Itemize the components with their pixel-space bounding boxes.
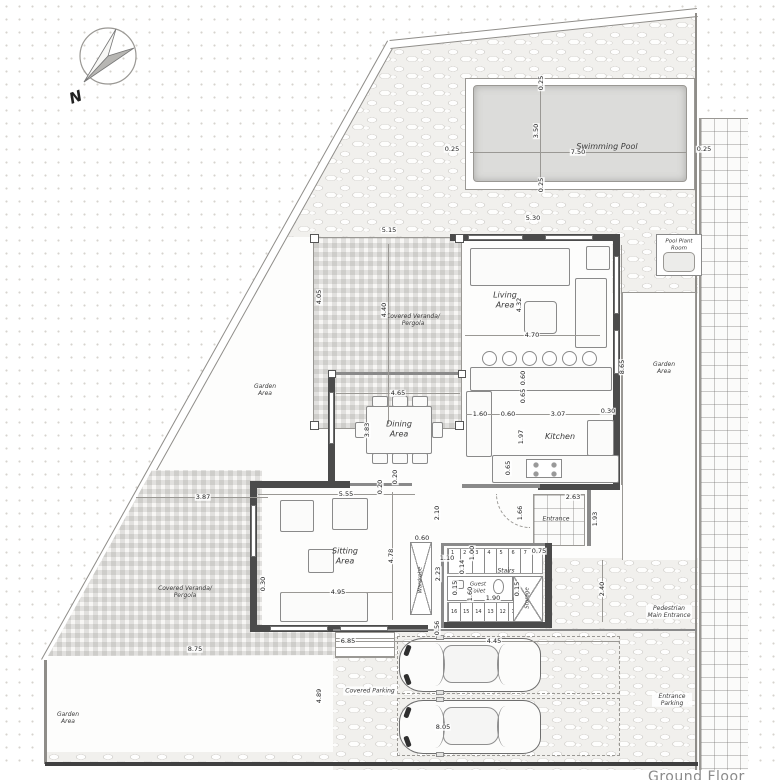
column-3 (310, 421, 319, 430)
label-garden-left: Garden Area (247, 383, 283, 397)
column-4 (455, 421, 464, 430)
floor-plan-canvas: 12345678 161514131211109 Swimming Pool P… (0, 0, 780, 780)
dim-veranda-mid: 4.40 (381, 302, 388, 318)
window-living-1 (468, 235, 523, 240)
window-sitting-bottom-1 (270, 626, 328, 631)
label-garden-right: Garden Area (646, 361, 682, 375)
car-mirror (436, 697, 444, 702)
dim-kitchen-d: 0.30 (600, 408, 616, 415)
dim-dining-bottom: 0.20 (392, 469, 399, 485)
stair-num: 7 (524, 550, 527, 556)
dining-chair-6 (412, 453, 428, 464)
dim-stairs-s2: 1.60 (467, 586, 474, 602)
car-rear-window (497, 644, 511, 685)
column-6 (458, 370, 466, 378)
sitting-armchair-2 (332, 498, 368, 530)
stair-num: 14 (475, 609, 481, 615)
dim-bottom-gap: 0.56 (434, 620, 441, 636)
living-side-table (586, 246, 610, 270)
label-pedestrian-entrance: Pedestrian Main Entrance (646, 605, 692, 619)
label-veranda-top: Covered Veranda/ Pergola (380, 313, 446, 327)
column-2 (455, 234, 464, 243)
dim-kitchen-b: 0.60 (500, 411, 516, 418)
dining-chair-4 (372, 453, 388, 464)
dim-garden-height: 4.89 (316, 688, 323, 704)
living-coffee-table (524, 301, 557, 334)
bar-stool-4 (542, 351, 557, 366)
driveway-corridor (699, 118, 748, 770)
dining-chair-2 (392, 396, 408, 407)
car-rear-window (497, 706, 511, 747)
label-stairs: Stairs (497, 567, 514, 574)
wall-kitchen-bottom-right (538, 484, 620, 490)
column-1 (310, 234, 319, 243)
dim-garden-width: 8.75 (187, 646, 203, 653)
dim-sitting-left: 0.30 (260, 576, 267, 592)
window-sitting-bottom-2 (340, 626, 388, 631)
kitchen-counter-left (466, 391, 492, 457)
dim-living-right: 8.65 (619, 359, 626, 375)
driveway-top-line (699, 118, 748, 119)
dim-sitting-top: 5.55 (338, 491, 354, 498)
dining-chair-3 (412, 396, 428, 407)
dim-entrance-width: 2.63 (565, 494, 581, 501)
dim-pool-width: 7.50 (570, 149, 586, 156)
sitting-armchair-1 (280, 500, 314, 532)
dim-stairs-p: 0.75 (531, 548, 547, 555)
dim-dining-height: 3.83 (364, 422, 371, 438)
stair-num: 13 (487, 609, 493, 615)
car-roof (443, 707, 499, 745)
dim-kitchen-e: 0.60 (520, 370, 527, 386)
label-pool-plant-room: Pool Plant Room (660, 238, 698, 251)
dim-stairs-tread: 0.14 (459, 559, 466, 575)
garden-area-right (622, 292, 696, 560)
stair-num: 15 (463, 609, 469, 615)
label-storage: Storage (525, 587, 532, 609)
dim-kitchen-g: 0.65 (505, 460, 512, 476)
dim-veranda-left-width: 3.87 (195, 494, 211, 501)
stairs-numbers-up: 12345678 (451, 550, 539, 556)
car-1 (399, 638, 541, 692)
label-wardrobe: Wardrobe (418, 567, 425, 594)
dim-parking-a: 6.85 (340, 638, 356, 645)
toilet-wc (493, 579, 504, 594)
dim-kitchen-c: 3.07 (550, 411, 566, 418)
bar-stool-5 (562, 351, 577, 366)
label-covered-parking: Covered Parking (343, 686, 397, 695)
dim-pool-bottom: 0.25 (538, 177, 545, 193)
dim-kitchen-height: 1.97 (518, 429, 525, 445)
boundary-wall-bottom (45, 762, 698, 766)
dining-chair-1 (372, 396, 388, 407)
label-dining: Dining Area (381, 419, 417, 438)
dim-sitting-width: 4.95 (330, 589, 346, 596)
stair-num: 4 (487, 550, 490, 556)
car-mirror (436, 752, 444, 757)
label-sitting: Sitting Area (329, 546, 361, 565)
dim-parking-b: 4.45 (486, 638, 502, 645)
label-entrance-parking: Entrance Parking (652, 693, 692, 707)
dim-stairs-s3: 0.15 (514, 581, 521, 597)
label-kitchen: Kitchen (545, 432, 575, 442)
dining-chair-8 (432, 422, 443, 438)
dim-wardrobe-width: 0.60 (414, 535, 430, 542)
sitting-sofa (280, 592, 368, 622)
north-label: N (67, 86, 85, 106)
living-sofa-right (575, 278, 607, 348)
dim-stairs-s1: 0.15 (452, 580, 459, 596)
dim-living-height: 4.32 (516, 297, 523, 313)
boundary-wall-left (44, 660, 47, 764)
label-entrance: Entrance (543, 515, 570, 522)
dim-hall-width: 1.10 (439, 555, 455, 562)
dim-right-vertical: 2.40 (599, 581, 606, 597)
dim-line (336, 641, 620, 642)
kitchen-island (470, 367, 612, 391)
dim-pool-left: 0.25 (444, 146, 460, 153)
dim-sitting-height: 4.78 (388, 548, 395, 564)
car-mirror (436, 690, 444, 695)
dim-sitting-t: 0.20 (377, 479, 384, 495)
bar-stool-1 (482, 351, 497, 366)
car-2 (399, 700, 541, 754)
wall-stairs-bottom (441, 622, 552, 628)
car-roof (443, 645, 499, 683)
kitchen-fridge (587, 420, 614, 456)
dim-living-width: 4.70 (524, 332, 540, 339)
dim-entrance-left: 1.66 (517, 505, 524, 521)
label-veranda-left: Covered Veranda/ Pergola (149, 585, 221, 599)
dim-kitchen-f: 0.65 (520, 388, 527, 404)
stair-num: 2 (463, 550, 466, 556)
dim-hall-h1: 2.10 (434, 505, 441, 521)
stair-num: 5 (499, 550, 502, 556)
dim-kitchen-a: 1.60 (472, 411, 488, 418)
wall-stairs-right (545, 543, 552, 628)
bar-stool-6 (582, 351, 597, 366)
label-garden-bottom: Garden Area (50, 711, 86, 725)
dim-living-top: 5.30 (525, 215, 541, 222)
pool-plant-equipment (663, 252, 695, 272)
plan-title: Ground Floor (648, 769, 745, 780)
dim-veranda-width: 5.15 (381, 227, 397, 234)
window-living-right (614, 256, 619, 314)
garden-area-bottom (48, 652, 330, 752)
swimming-pool (473, 85, 687, 182)
window-dining-left (329, 392, 334, 444)
wall-sitting-top (250, 481, 350, 488)
dim-stairs-width: 1.90 (485, 595, 501, 602)
dim-pool-top: 0.25 (538, 75, 545, 91)
dim-dining-width: 4.65 (390, 390, 406, 397)
dim-entrance-height: 1.93 (592, 511, 599, 527)
dim-stairs-flight-width: 1.00 (469, 545, 476, 561)
dim-pool-height: 3.50 (533, 123, 540, 139)
window-living-2 (545, 235, 593, 240)
dim-hall-h2: 2.23 (435, 566, 442, 582)
dim-line (388, 244, 389, 424)
wall-kitchen-bottom-left (462, 484, 540, 488)
kitchen-hob (526, 459, 562, 478)
stair-num: 12 (499, 609, 505, 615)
bar-stool-3 (522, 351, 537, 366)
dim-pool-right: 0.25 (696, 146, 712, 153)
living-sofa-top (470, 248, 570, 286)
dim-parking-c: 8.05 (435, 724, 451, 731)
dim-veranda-height: 4.05 (316, 289, 323, 305)
wall-stairs-top (441, 543, 549, 546)
dining-chair-5 (392, 453, 408, 464)
veranda-dining-line (331, 372, 463, 375)
stair-num: 6 (512, 550, 515, 556)
column-5 (328, 370, 336, 378)
window-sitting-left (251, 505, 256, 557)
stair-num: 16 (451, 609, 457, 615)
bar-stool-2 (502, 351, 517, 366)
pool-dim-line-v (540, 88, 541, 178)
north-arrow-icon: N (66, 18, 146, 106)
